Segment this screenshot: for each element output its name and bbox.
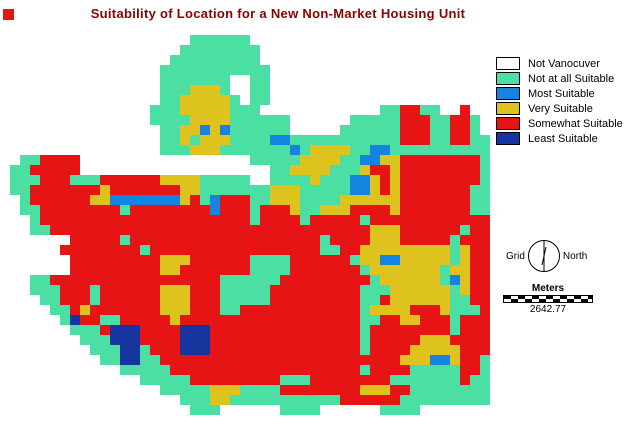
legend-swatch — [496, 57, 520, 70]
legend-label: Not Vanocuver — [528, 58, 600, 70]
map-title: Suitability of Location for a New Non-Ma… — [0, 6, 556, 21]
legend-item: Most Suitable — [496, 86, 623, 101]
compass-dial-icon — [527, 239, 561, 273]
scale-value: 2642.77 — [500, 304, 596, 315]
scale-bar-graphic — [503, 295, 593, 303]
legend: Not VanocuverNot at all SuitableMost Sui… — [496, 56, 623, 146]
legend-item: Very Suitable — [496, 101, 623, 116]
scale-bar-ticks-bottom — [504, 299, 592, 302]
compass-grid-label: Grid — [506, 251, 525, 262]
legend-item: Not Vanocuver — [496, 56, 623, 71]
legend-swatch — [496, 102, 520, 115]
legend-label: Very Suitable — [528, 103, 593, 115]
scale-bar: Meters 2642.77 — [500, 283, 596, 315]
scale-unit-label: Meters — [500, 283, 596, 294]
legend-item: Least Suitable — [496, 131, 623, 146]
legend-swatch — [496, 117, 520, 130]
legend-label: Somewhat Suitable — [528, 118, 623, 130]
compass-north-label: North — [563, 251, 587, 262]
legend-swatch — [496, 72, 520, 85]
legend-label: Not at all Suitable — [528, 73, 614, 85]
legend-label: Least Suitable — [528, 133, 598, 145]
legend-swatch — [496, 87, 520, 100]
suitability-map — [0, 35, 490, 425]
legend-label: Most Suitable — [528, 88, 595, 100]
red-corner-marker — [3, 9, 14, 20]
legend-swatch — [496, 132, 520, 145]
legend-item: Somewhat Suitable — [496, 116, 623, 131]
north-arrow: Grid North — [506, 239, 587, 273]
legend-item: Not at all Suitable — [496, 71, 623, 86]
map-document: Suitability of Location for a New Non-Ma… — [0, 0, 626, 425]
